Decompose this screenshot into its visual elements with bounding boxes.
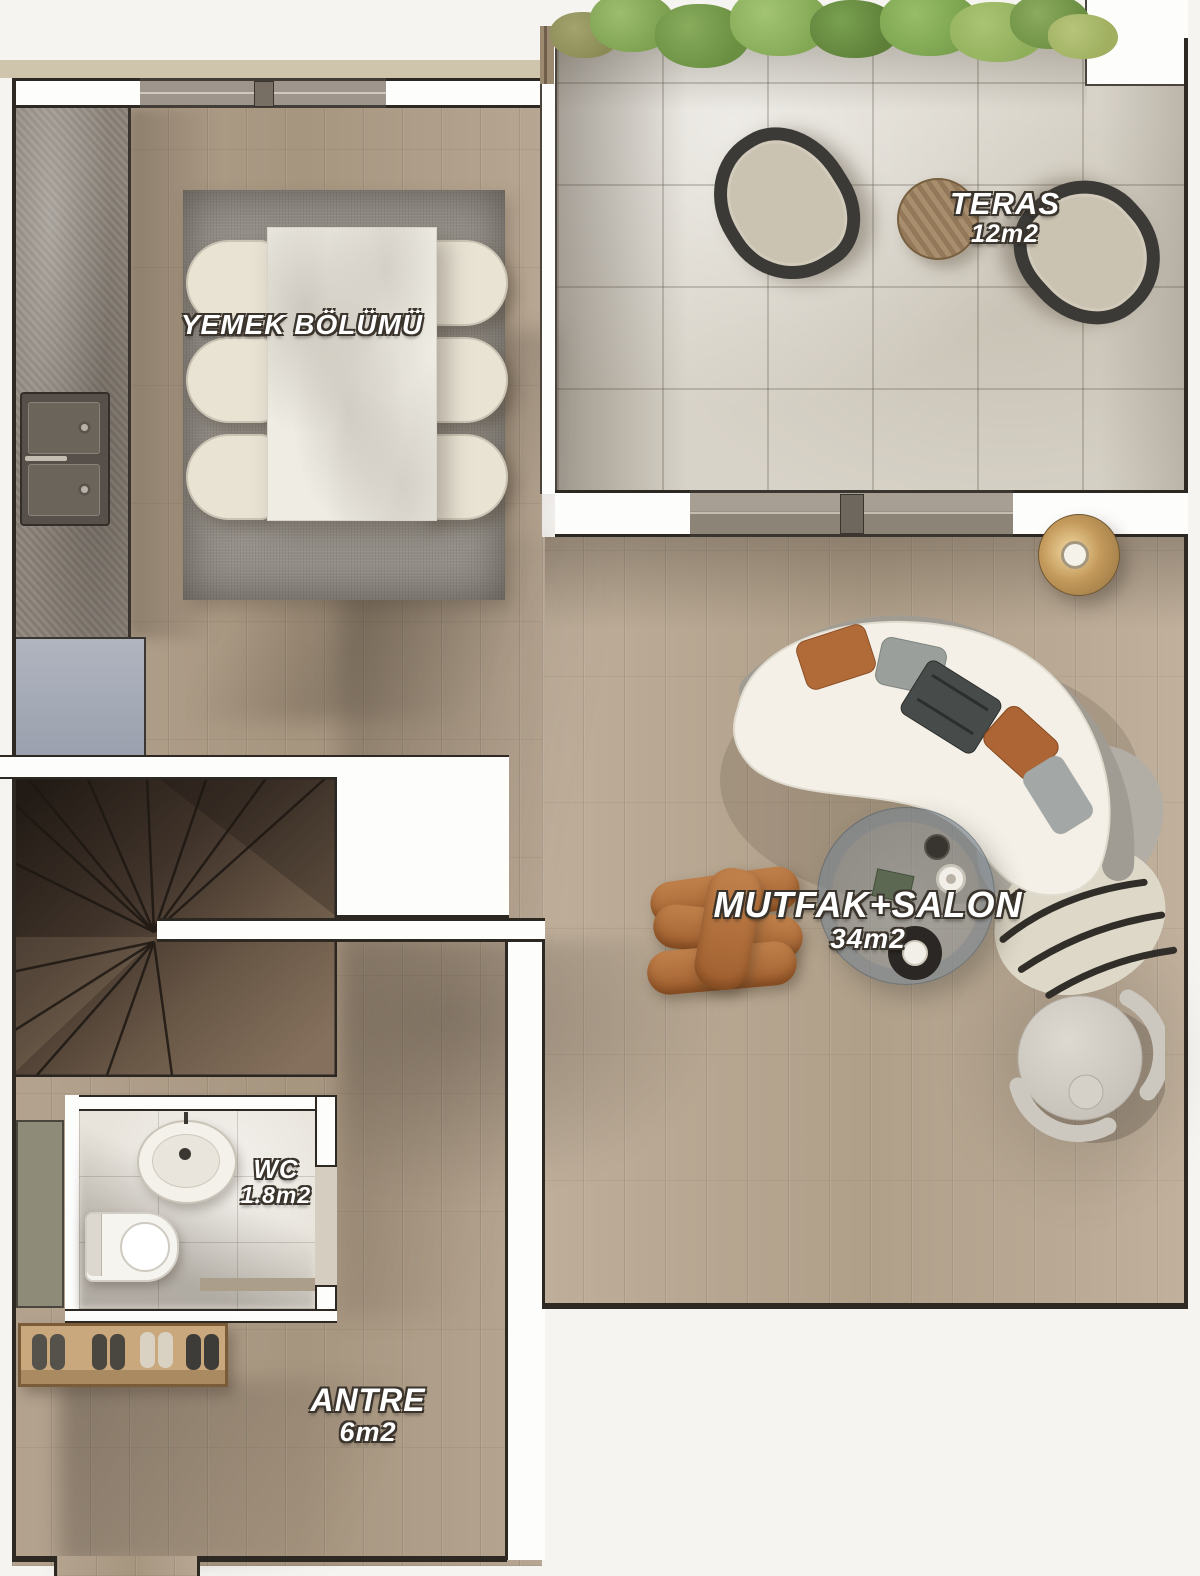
wall <box>542 1303 1188 1309</box>
faucet-stub <box>184 1112 188 1124</box>
wall <box>65 1095 79 1325</box>
kitchen-counter <box>16 100 131 637</box>
label-teras: TERAS 12m2 <box>950 188 1060 247</box>
room-area: 1.8m2 <box>241 1183 311 1207</box>
room-name: TERAS <box>950 186 1060 221</box>
shoe <box>186 1334 201 1370</box>
wall <box>0 755 340 779</box>
shoe <box>92 1334 107 1370</box>
shoe <box>110 1334 125 1370</box>
sink-basin <box>28 402 100 454</box>
wc-shelf <box>200 1278 315 1291</box>
wc-door-threshold <box>315 1167 337 1285</box>
wc-sink-basin <box>152 1134 220 1188</box>
dining-chair <box>186 337 274 423</box>
wall <box>505 1307 545 1560</box>
faucet-icon <box>78 421 91 434</box>
slipper <box>158 1332 173 1368</box>
window <box>140 78 386 108</box>
room-area: 34m2 <box>714 924 1023 953</box>
label-yemek: YEMEK BÖLÜMÜ <box>181 310 423 339</box>
entry-opening <box>54 1556 200 1576</box>
wall <box>12 78 16 1562</box>
label-salon: MUTFAK+SALON 34m2 <box>714 886 1023 953</box>
shoe <box>50 1334 65 1370</box>
shoe <box>32 1334 47 1370</box>
wall <box>555 490 690 537</box>
slipper <box>140 1332 155 1368</box>
sink-basin <box>28 464 100 516</box>
label-wc: WC 1.8m2 <box>241 1156 311 1207</box>
planter-plants <box>550 0 1090 78</box>
toilet-bowl <box>120 1222 170 1272</box>
wc-cabinet <box>16 1120 64 1308</box>
wall <box>505 942 545 1307</box>
room-area: 6m2 <box>310 1418 425 1446</box>
room-area: 12m2 <box>950 221 1060 247</box>
room-name: YEMEK BÖLÜMÜ <box>181 309 423 340</box>
wall <box>65 1309 337 1323</box>
sliding-door <box>690 490 1013 537</box>
dining-table <box>267 227 437 521</box>
faucet-icon <box>78 483 91 496</box>
wc-sink <box>137 1120 237 1204</box>
teapot <box>924 834 950 860</box>
wall <box>337 755 509 918</box>
faucet-icon <box>179 1148 191 1160</box>
room-name: WC <box>253 1154 298 1184</box>
floor-lamp <box>1038 514 1120 596</box>
wall <box>315 1095 337 1167</box>
dining-chair <box>186 434 274 520</box>
wall <box>65 1095 337 1111</box>
refrigerator <box>12 637 146 759</box>
door-mullion <box>840 494 864 534</box>
round-armchair <box>1000 980 1165 1145</box>
wall <box>12 78 140 108</box>
sink-handle <box>25 456 67 461</box>
exterior-ledge <box>0 60 542 78</box>
wall <box>157 918 545 942</box>
shoe <box>204 1334 219 1370</box>
lamp-bulb <box>1061 541 1089 569</box>
wall <box>540 26 557 494</box>
kitchen-sink <box>20 392 110 526</box>
toilet <box>85 1212 179 1282</box>
label-antre: ANTRE 6m2 <box>310 1384 425 1446</box>
floor-plan: TERAS 12m2 YEMEK BÖLÜMÜ MUTFAK+SALON 34m… <box>0 0 1200 1576</box>
room-name: ANTRE <box>310 1382 425 1418</box>
window-mullion <box>254 81 274 107</box>
wall <box>386 78 542 108</box>
room-name: MUTFAK+SALON <box>714 884 1023 925</box>
toilet-tank <box>87 1214 102 1276</box>
plant-icon <box>1048 14 1118 59</box>
